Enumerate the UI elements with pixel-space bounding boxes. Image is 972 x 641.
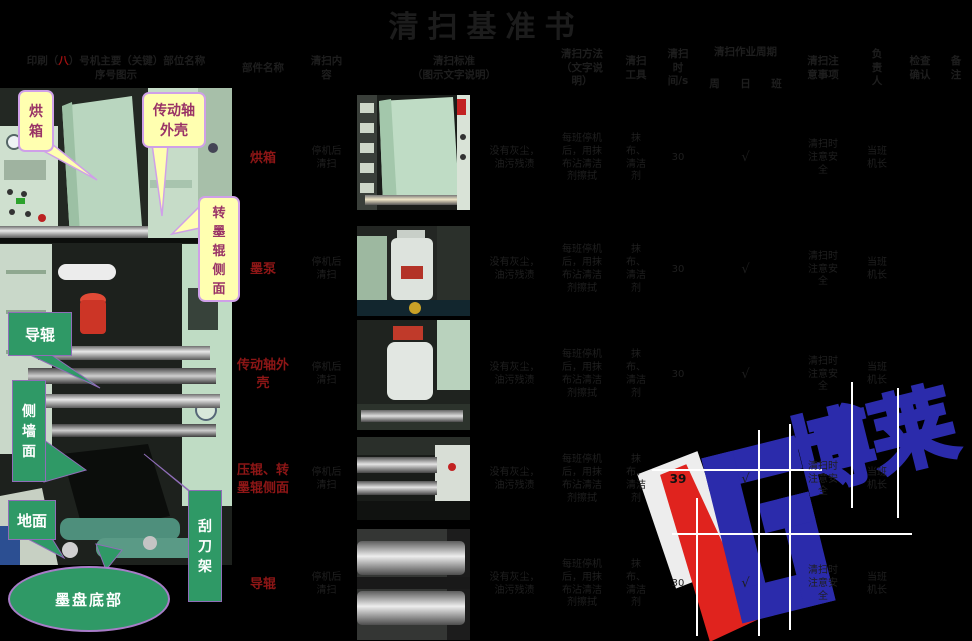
- row5-standard: 没有灰尘，油污残渍: [480, 528, 549, 641]
- column-header-method: 清扫方法（文字说明）: [549, 42, 615, 95]
- column-header-time: 清扫时间/s: [657, 42, 699, 95]
- row3-standard: 没有灰尘，油污残渍: [480, 318, 549, 432]
- row1-tool: 抹布、清洁剂: [615, 95, 657, 222]
- row3-cycle-shift: [761, 318, 792, 432]
- row3-remark: [940, 318, 972, 432]
- callout-guide-roller: 导辊: [8, 312, 72, 356]
- row1-cycle-day-check: √: [730, 95, 761, 222]
- column-header-cycle: 清扫作业周期 周 日 班: [699, 42, 792, 95]
- callout-doctor-blade-frame: 刮刀架: [188, 490, 222, 602]
- row3-notes: 清扫时注意安全: [792, 318, 854, 432]
- column-header-notes: 清扫注意事项: [792, 42, 854, 95]
- row2-content: 停机后清扫: [294, 222, 359, 318]
- callout-floor: 地面: [8, 500, 56, 540]
- row5-cycle-week: [699, 528, 730, 641]
- column-header-owner: 负责人: [854, 42, 900, 95]
- part-photo-drying-oven: [357, 95, 470, 210]
- row5-notes: 清扫时注意安全: [792, 528, 854, 641]
- row4-time: 39: [657, 432, 699, 528]
- row3-time: 30: [657, 318, 699, 432]
- row2-cycle-week: [699, 222, 730, 318]
- part-photo-press-roller: [357, 437, 470, 520]
- row1-standard: 没有灰尘，油污残渍: [480, 95, 549, 222]
- row1-method: 每班停机后，用抹布沾清洁剂擦拭: [549, 95, 615, 222]
- row3-part-name: 传动轴外壳: [232, 318, 294, 432]
- column-header-check: 检查确认: [900, 42, 940, 95]
- row1-check: [900, 95, 940, 222]
- row5-owner: 当班机长: [854, 528, 900, 641]
- row1-time: 30: [657, 95, 699, 222]
- callout-ink-roller-side: 转墨辊侧面: [198, 196, 240, 302]
- row2-cycle-shift: [761, 222, 792, 318]
- row4-method: 每班停机后，用抹布沾清洁剂擦拭: [549, 432, 615, 528]
- row4-content: 停机后清扫: [294, 432, 359, 528]
- row1-remark: [940, 95, 972, 222]
- row5-time: 30: [657, 528, 699, 641]
- row2-time: 30: [657, 222, 699, 318]
- row4-notes: 清扫时注意安全: [792, 432, 854, 528]
- row4-cycle-day-check: √: [730, 432, 761, 528]
- row1-part-name: 烘箱: [232, 95, 294, 222]
- row4-cycle-shift: [761, 432, 792, 528]
- row5-cycle-shift: [761, 528, 792, 641]
- row3-tool: 抹布、清洁剂: [615, 318, 657, 432]
- row1-cycle-week: [699, 95, 730, 222]
- row2-owner: 当班机长: [854, 222, 900, 318]
- row2-method: 每班停机后，用抹布沾清洁剂擦拭: [549, 222, 615, 318]
- row4-standard: 没有灰尘，油污残渍: [480, 432, 549, 528]
- row3-cycle-week: [699, 318, 730, 432]
- callout-drive-shaft-housing: 传动轴外壳: [142, 92, 206, 148]
- row5-cycle-day-check: √: [730, 528, 761, 641]
- row3-content: 停机后清扫: [294, 318, 359, 432]
- callout-drying-oven: 烘箱: [18, 90, 54, 152]
- row2-part-name: 墨泵: [232, 222, 294, 318]
- column-header-standard: 清扫标准（图示文字说明）: [359, 42, 549, 95]
- part-photo-drive-shaft: [357, 320, 470, 430]
- row2-check: [900, 222, 940, 318]
- row1-owner: 当班机长: [854, 95, 900, 222]
- part-photo-ink-pump: [357, 226, 470, 316]
- cycle-shift-label: 班: [761, 78, 792, 91]
- row2-standard: 没有灰尘，油污残渍: [480, 222, 549, 318]
- row5-method: 每班停机后，用抹布沾清洁剂擦拭: [549, 528, 615, 641]
- row3-owner: 当班机长: [854, 318, 900, 432]
- row5-part-name: 导辊: [232, 528, 294, 641]
- column-header-tool: 清扫工具: [615, 42, 657, 95]
- column-header-remark: 备注: [940, 42, 972, 95]
- row2-cycle-day-check: √: [730, 222, 761, 318]
- row2-notes: 清扫时注意安全: [792, 222, 854, 318]
- row4-part-name: 压辊、转墨辊侧面: [232, 432, 294, 528]
- column-header-part-name: 部件名称: [232, 42, 294, 95]
- cleaning-standard-sheet: 博莱 清扫基准书 印刷（八）号机主要（关键）部位名称 序号图示 部件名称 清扫内…: [0, 0, 972, 641]
- row4-remark: [940, 432, 972, 528]
- row3-check: [900, 318, 940, 432]
- row1-content: 停机后清扫: [294, 95, 359, 222]
- row4-cycle-week: [699, 432, 730, 528]
- row3-method: 每班停机后，用抹布沾清洁剂擦拭: [549, 318, 615, 432]
- row4-tool: 抹布、清洁剂: [615, 432, 657, 528]
- callout-ink-tray-bottom: 墨盘底部: [8, 566, 170, 632]
- row2-tool: 抹布、清洁剂: [615, 222, 657, 318]
- row5-remark: [940, 528, 972, 641]
- column-header-content: 清扫内容: [294, 42, 359, 95]
- row5-tool: 抹布、清洁剂: [615, 528, 657, 641]
- page-title: 清扫基准书: [0, 2, 972, 46]
- row2-remark: [940, 222, 972, 318]
- cycle-week-label: 周: [699, 78, 730, 91]
- row1-cycle-shift: [761, 95, 792, 222]
- row4-check: [900, 432, 940, 528]
- part-photo-guide-roller: [357, 529, 470, 640]
- row5-check: [900, 528, 940, 641]
- row3-cycle-day-check: √: [730, 318, 761, 432]
- callout-side-wall: 侧墙面: [12, 380, 46, 482]
- row1-notes: 清扫时注意安全: [792, 95, 854, 222]
- row4-owner: 当班机长: [854, 432, 900, 528]
- cycle-day-label: 日: [730, 78, 761, 91]
- row5-content: 停机后清扫: [294, 528, 359, 641]
